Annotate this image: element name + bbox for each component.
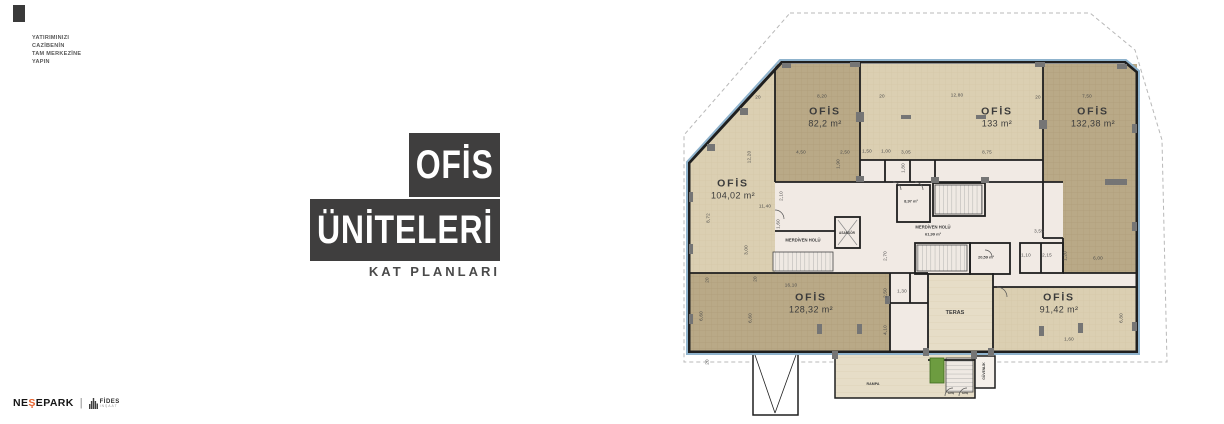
dimension-label: 20 (879, 94, 885, 99)
dimension-label: 16,10 (785, 283, 798, 288)
footer-logos: NEŞEPARK | FİDES İNŞAAT (13, 397, 120, 409)
partner-sub: İNŞAAT (100, 405, 120, 408)
dimension-label: 12,80 (951, 93, 964, 98)
room-label: OFİS132,38 m² (1071, 106, 1115, 129)
room-label: OFİS133 m² (981, 106, 1013, 129)
dimension-label: 4,10 (883, 325, 888, 335)
dimension-label: 11,40 (759, 204, 771, 209)
dimension-label: 3,00 (744, 245, 749, 255)
dimension-label: 1,80 (901, 163, 906, 173)
dimension-label: 20 (755, 95, 761, 100)
dimension-label: 7,50 (1082, 94, 1092, 99)
room-label: OFİS104,02 m² (711, 178, 755, 201)
core-label: MERDİVEN HOLÜ (915, 225, 950, 230)
dimension-label: 8,72 (706, 213, 711, 223)
dimension-label: 6,60 (699, 311, 704, 321)
dimension-label: 1,60 (1064, 337, 1074, 342)
dimension-label: 2,50 (883, 288, 888, 298)
dimension-label: 6,80 (1119, 313, 1124, 323)
floor-plan: OFİS82,2 m²OFİS133 m²OFİS132,38 m²OFİS10… (645, 0, 1224, 424)
dimension-label: 20 (705, 359, 710, 365)
dimension-label: 2,10 (779, 191, 784, 201)
dimension-label: 1,50 (862, 149, 872, 154)
core-label: ASANSÖR (839, 231, 855, 235)
nesepark-logo: NEŞEPARK (13, 397, 74, 409)
dimension-label: 12,20 (747, 151, 752, 164)
dimension-label: 20 (705, 277, 710, 283)
dimension-label: 1,00 (881, 149, 891, 154)
brand-post: EPARK (36, 397, 74, 409)
dimension-label: 3,05 (901, 150, 911, 155)
dimension-label: 6,60 (748, 313, 753, 323)
dimension-label: 4,50 (796, 150, 806, 155)
tagline-line: YATIRIMINIZI (32, 34, 81, 42)
dimension-label: 3,55 (1034, 229, 1044, 234)
tagline: YATIRIMINIZI CAZİBENİN TAM MERKEZİNE YAP… (32, 34, 81, 66)
title-ofis: OFİS (409, 133, 500, 197)
title-uniteleri-text: ÜNİTELERİ (317, 208, 493, 253)
dimension-label: 2,15 (1042, 253, 1052, 258)
tagline-line: TAM MERKEZİNE (32, 50, 81, 58)
footer-divider: | (80, 397, 83, 409)
dimension-label: 1,20 (1063, 251, 1068, 261)
core-label: Giriş (962, 391, 968, 395)
core-label: MERDİVEN HOLÜ (785, 238, 820, 243)
core-label: TERAS (946, 310, 965, 316)
dimension-label: 1,10 (1021, 253, 1031, 258)
core-label: 8,97 m² (904, 199, 918, 204)
room-label: OFİS128,32 m² (789, 292, 833, 315)
room-label: OFİS91,42 m² (1040, 292, 1079, 315)
dimension-label: 6,00 (1093, 256, 1103, 261)
dimension-label: 20 (1035, 95, 1041, 100)
core-label: RAMPA (867, 382, 880, 386)
title-uniteleri: ÜNİTELERİ (310, 199, 500, 261)
tagline-line: YAPIN (32, 58, 81, 66)
core-label: 61,99 m² (925, 232, 941, 237)
room-label: OFİS82,2 m² (808, 106, 841, 129)
corner-logo (13, 5, 25, 22)
brand-accent: Ş (28, 397, 35, 409)
fides-logo: FİDES İNŞAAT (89, 398, 120, 409)
dimension-label: 2,50 (840, 150, 850, 155)
fides-bars-icon (89, 398, 98, 409)
dimension-label: 8,75 (982, 150, 992, 155)
core-label: 20,59 m² (978, 255, 994, 260)
dimension-label: 1,30 (897, 289, 907, 294)
dimension-label: 1,60 (776, 219, 781, 229)
title-ofis-text: OFİS (416, 143, 494, 188)
dimension-label: 2,70 (883, 251, 888, 261)
core-label: Giriş (948, 391, 954, 395)
subtitle-kat-planlari: KAT PLANLARI (200, 264, 500, 279)
dimension-label: 1,90 (836, 159, 841, 169)
plan-labels: OFİS82,2 m²OFİS133 m²OFİS132,38 m²OFİS10… (645, 0, 1224, 424)
tagline-line: CAZİBENİN (32, 42, 81, 50)
brand-pre: NE (13, 397, 28, 409)
core-label: GÜVENLİK (982, 362, 986, 380)
dimension-label: 20 (753, 276, 758, 282)
dimension-label: 8,20 (817, 94, 827, 99)
